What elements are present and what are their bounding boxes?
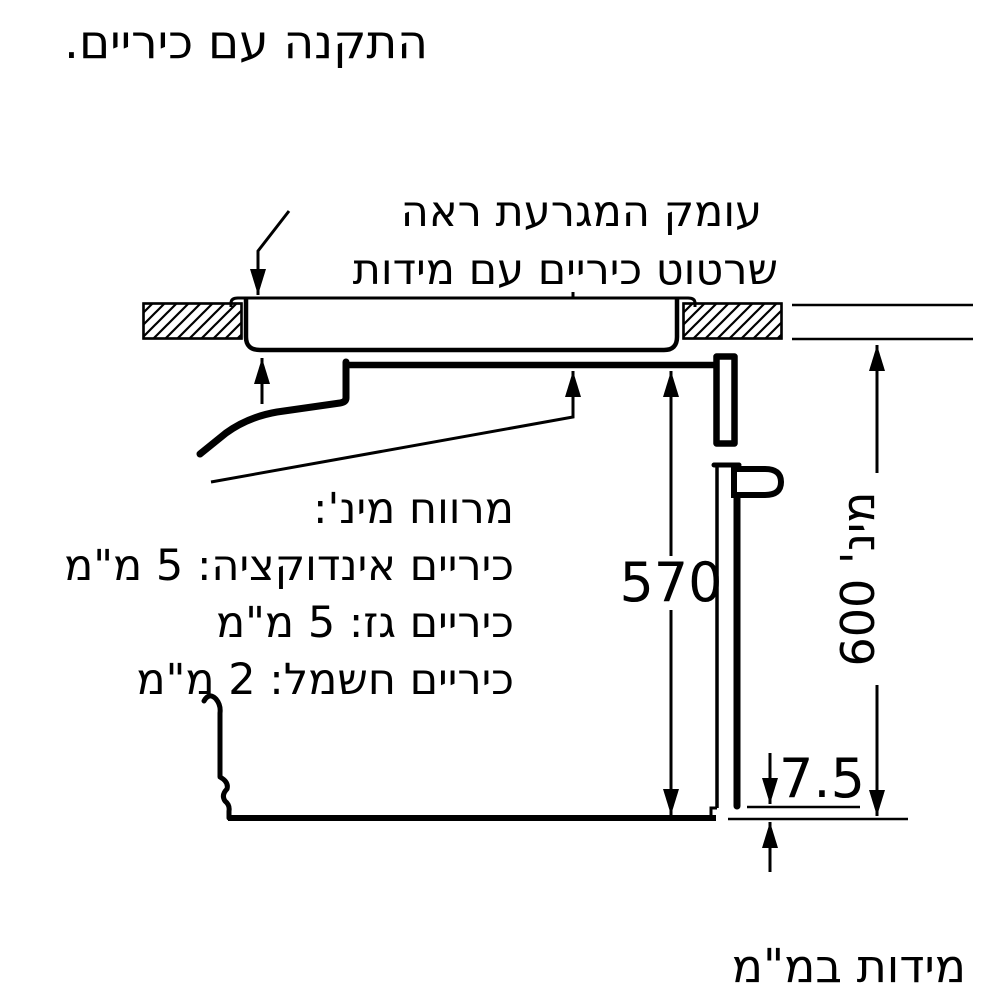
page-title: התקנה עם כיריים. — [64, 15, 428, 70]
clearance-note-line3: כיריים גז: 5 מ"מ — [216, 598, 514, 648]
installation-diagram: התקנה עם כיריים. עומק המגרעת ראה שרטוט כ… — [0, 0, 1000, 1000]
installation-diagram-page: התקנה עם כיריים. עומק המגרעת ראה שרטוט כ… — [0, 0, 1000, 1000]
countertop-hatch-left-pattern — [144, 304, 242, 339]
recess-leader-line — [258, 211, 289, 295]
dimension-570-label: 570 — [619, 551, 722, 614]
oven-left-break-line — [204, 696, 229, 818]
clearance-note-line4: כיריים חשמל: 2 מ"מ — [136, 655, 514, 705]
dimension-min-600: מינ' 600 — [831, 345, 885, 816]
dimension-7-5: 7.5 — [728, 747, 908, 872]
clearance-leader-line — [211, 371, 573, 482]
cooktop-recess-tub — [246, 299, 677, 350]
cooktop — [231, 298, 695, 404]
dimension-75-label: 7.5 — [779, 747, 865, 810]
oven-front-ramp — [200, 362, 346, 454]
control-panel — [717, 357, 735, 444]
door-handle — [734, 469, 781, 495]
clearance-note-line2: כיריים אינדוקציה: 5 מ"מ — [64, 541, 514, 591]
recess-depth-annotation-line2: שרטוט כיריים עם מידות — [353, 245, 778, 295]
dimension-600-label: מינ' 600 — [831, 491, 885, 666]
dimension-570: 570 — [619, 371, 722, 815]
countertop-hatch-right-pattern — [684, 304, 782, 339]
min-clearance-note: מרווח מינ': כיריים אינדוקציה: 5 מ"מ כירי… — [64, 371, 573, 705]
footer-units-note: מידות במ"מ — [732, 939, 966, 993]
clearance-note-line1: מרווח מינ': — [313, 484, 514, 534]
recess-depth-annotation-line1: עומק המגרעת ראה — [401, 187, 762, 237]
